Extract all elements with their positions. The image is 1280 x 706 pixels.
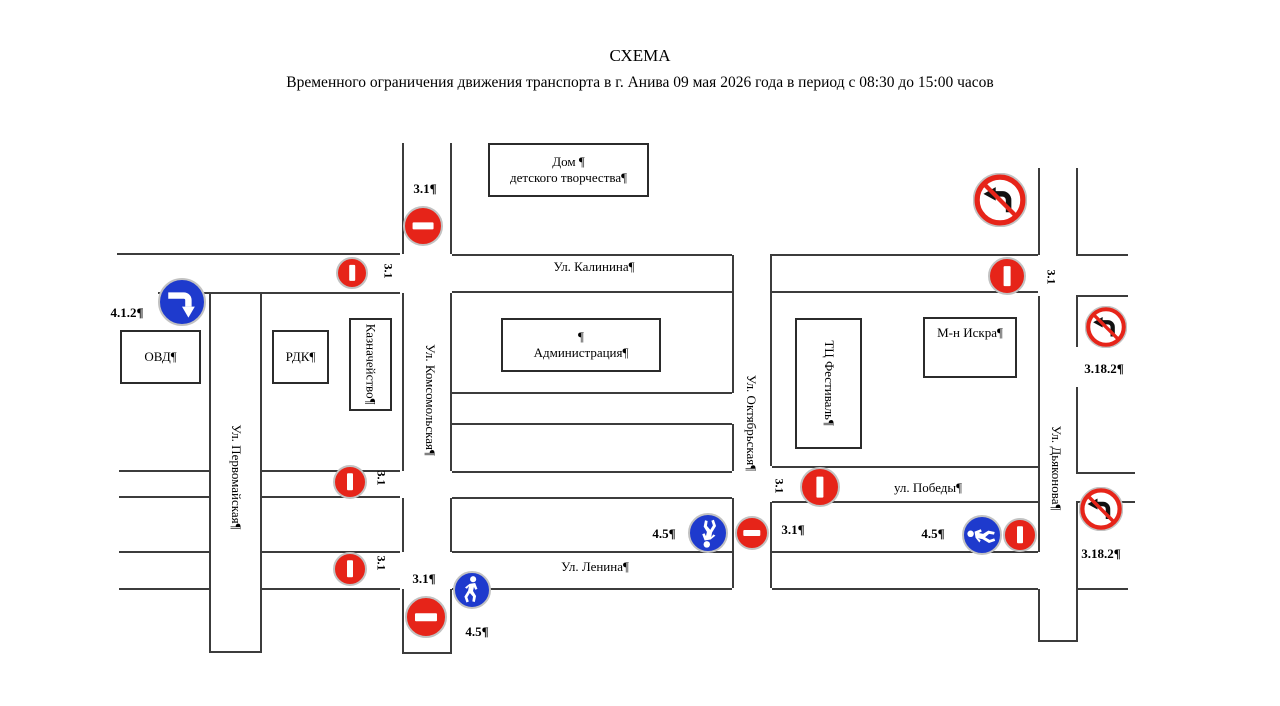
no-entry-sign-icon: [800, 467, 840, 507]
road-line: [402, 589, 404, 653]
road-line: [452, 291, 732, 293]
road-line: [402, 293, 404, 471]
building-dom-detskogo-tvorchestva: Дом ¶ детского творчества¶: [488, 143, 649, 197]
road-line: [1038, 296, 1040, 552]
sign-code-3-1: 3.1: [1044, 270, 1059, 285]
no-left-turn-sign-icon: [973, 173, 1027, 227]
road-line: [450, 143, 452, 254]
road-line: [260, 588, 400, 590]
no-entry-sign-icon: [1003, 518, 1037, 552]
road-line: [1076, 296, 1078, 347]
road-line: [452, 423, 732, 425]
road-line: [1038, 640, 1078, 642]
no-entry-sign-icon: [405, 596, 447, 638]
building-kaznacheystvo: Казначейство¶: [349, 318, 392, 411]
building-mn-iskra: М-н Искра¶: [923, 317, 1017, 378]
sign-code-4-5: 4.5¶: [465, 624, 488, 640]
no-left-turn-sign-icon: [1085, 306, 1127, 348]
road-line: [770, 254, 1038, 256]
building-label: ОВД¶: [144, 349, 176, 365]
sign-code-3-1: 3.1: [772, 479, 787, 494]
road-line: [1076, 168, 1078, 255]
no-entry-sign-icon: [735, 516, 769, 550]
traffic-restriction-scheme: СХЕМА Временного ограничения движения тр…: [0, 0, 1280, 706]
street-label-komsomolskaya: Ул. Комсомольская¶: [422, 344, 438, 456]
road-line: [119, 470, 209, 472]
pedestrian-sign-icon: [688, 513, 728, 553]
no-entry-sign-icon: [333, 465, 367, 499]
sign-code-3-18-2: 3.18.2¶: [1084, 361, 1124, 377]
street-label-pobedy: ул. Победы¶: [894, 480, 962, 496]
road-line: [770, 255, 772, 466]
road-line: [119, 496, 209, 498]
road-line: [452, 471, 732, 473]
road-line: [772, 588, 1038, 590]
road-line: [209, 651, 262, 653]
road-line: [770, 502, 772, 588]
road-line: [1076, 295, 1128, 297]
sign-code-3-18-2: 3.18.2¶: [1081, 546, 1121, 562]
road-line: [402, 498, 404, 552]
road-line: [450, 293, 452, 471]
page-title: СХЕМА: [0, 46, 1280, 66]
road-line: [1076, 502, 1078, 641]
road-line: [402, 652, 452, 654]
road-line: [452, 392, 732, 394]
road-line: [732, 498, 734, 588]
road-line: [452, 588, 732, 590]
building-label: Казначейство¶: [362, 324, 378, 405]
street-label-oktyabrskaya: Ул. Октябрьская¶: [743, 375, 759, 471]
road-line: [119, 551, 209, 553]
building-label: Дом ¶: [552, 154, 585, 169]
road-line: [260, 293, 262, 652]
road-line: [1076, 387, 1078, 473]
road-line: [1076, 588, 1128, 590]
building-label: РДК¶: [286, 349, 316, 365]
building-rdk: РДК¶: [272, 330, 329, 384]
building-label: детского творчества¶: [510, 170, 627, 185]
sign-code-3-1: 3.1: [374, 556, 389, 571]
building-label: Администрация¶: [534, 345, 629, 360]
building-administratsiya: ¶ Администрация¶: [501, 318, 661, 372]
road-line: [119, 588, 209, 590]
road-line: [1038, 168, 1040, 255]
road-line: [260, 496, 400, 498]
building-tc-festival: ТЦ Фестиваль¶: [795, 318, 862, 449]
road-line: [1038, 589, 1040, 641]
sign-code-3-1: 3.1: [381, 264, 396, 279]
road-line: [402, 143, 404, 254]
street-label-lenina: Ул. Ленина¶: [561, 559, 629, 575]
sign-code-4-1-2: 4.1.2¶: [110, 305, 143, 321]
building-label: ¶: [578, 329, 584, 344]
road-line: [452, 254, 732, 256]
sign-code-3-1: 3.1¶: [412, 571, 435, 587]
sign-code-4-5: 4.5¶: [921, 526, 944, 542]
sign-code-4-5: 4.5¶: [652, 526, 675, 542]
no-entry-sign-icon: [336, 257, 368, 289]
sign-code-3-1: 3.1¶: [413, 181, 436, 197]
road-line: [452, 497, 732, 499]
pedestrian-sign-icon: [962, 515, 1002, 555]
no-left-turn-sign-icon: [1079, 487, 1123, 531]
turn-right-sign-icon: [158, 278, 206, 326]
road-line: [450, 589, 452, 653]
road-line: [452, 551, 732, 553]
street-label-kalinina: Ул. Калинина¶: [553, 259, 634, 275]
building-label: М-н Искра¶: [937, 325, 1003, 341]
street-label-dyakonova: Ул. Дьяконова¶: [1048, 426, 1064, 511]
road-line: [209, 293, 211, 652]
road-line: [117, 253, 400, 255]
sign-code-3-1: 3.1¶: [781, 522, 804, 538]
no-entry-sign-icon: [333, 552, 367, 586]
road-line: [260, 551, 400, 553]
building-ovd: ОВД¶: [120, 330, 201, 384]
road-line: [450, 498, 452, 552]
road-line: [1076, 254, 1128, 256]
road-line: [1076, 472, 1135, 474]
no-entry-sign-icon: [403, 206, 443, 246]
pedestrian-sign-icon: [453, 571, 491, 609]
no-entry-sign-icon: [988, 257, 1026, 295]
road-line: [732, 255, 734, 393]
page-subtitle: Временного ограничения движения транспор…: [0, 74, 1280, 92]
sign-code-3-1: 3.1: [374, 471, 389, 486]
street-label-pervomayskaya: Ул. Первомайская¶: [228, 424, 244, 529]
road-line: [732, 424, 734, 471]
building-label: ТЦ Фестиваль¶: [820, 341, 836, 427]
